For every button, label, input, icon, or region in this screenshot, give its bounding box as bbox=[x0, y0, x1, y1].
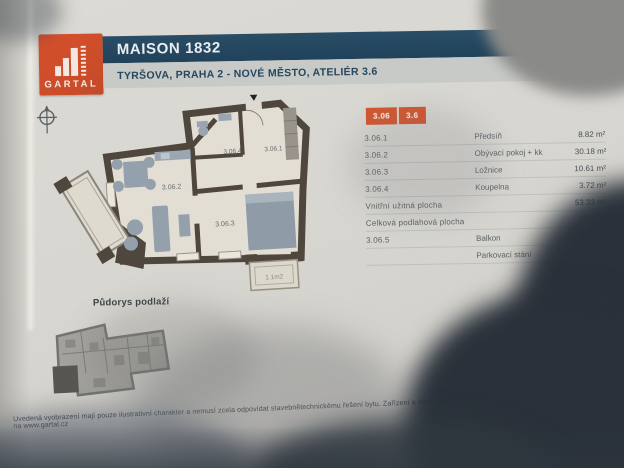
apartment-floor-plan: 1.1m2 bbox=[44, 93, 340, 304]
room-name: Obývací pokoj + kk bbox=[475, 147, 543, 157]
project-title: MAISON 1832 bbox=[117, 39, 221, 58]
balcony-area-label: 1.1m2 bbox=[265, 273, 284, 281]
room-code: 3.06.5 bbox=[366, 233, 476, 244]
room-area-table: 3.06.1 Předsíň 8.82 m² 3.06.2 Obývací po… bbox=[364, 126, 607, 266]
address-subtitle: TYRŠOVA, PRAHA 2 - NOVÉ MĚSTO, ATELIÉR 3… bbox=[117, 65, 378, 82]
window bbox=[219, 251, 241, 259]
coffee-table bbox=[178, 214, 190, 237]
building-floor-overview bbox=[51, 310, 181, 404]
brochure-sheet: GARTAL MAISON 1832 TYRŠOVA, PRAHA 2 - NO… bbox=[0, 0, 624, 468]
room-code bbox=[366, 255, 476, 257]
room-name: Balkon bbox=[476, 232, 543, 242]
mini-plan-caption: Půdorys podlaží bbox=[61, 296, 201, 309]
room-code: 3.06.3 bbox=[365, 165, 475, 176]
room-label-bathroom: 3.06.4 bbox=[223, 148, 242, 156]
summary-area: 53.33 m² bbox=[542, 197, 606, 207]
unit-badge: 3.06 3.6 bbox=[366, 107, 426, 125]
sofa bbox=[152, 205, 171, 252]
room-area: 30.18 m² bbox=[542, 146, 606, 156]
summary-area: 55.7 m² bbox=[543, 214, 607, 224]
building-bars-icon bbox=[54, 44, 89, 77]
brand-name: GARTAL bbox=[44, 79, 98, 91]
room-area: Ne bbox=[543, 248, 607, 258]
photographed-brochure-page: GARTAL MAISON 1832 TYRŠOVA, PRAHA 2 - NO… bbox=[0, 0, 624, 468]
entrance-arrow-icon bbox=[248, 93, 260, 101]
room-code: 3.06.4 bbox=[365, 182, 475, 193]
gartal-logo: GARTAL bbox=[38, 33, 103, 95]
room-name: Parkovací stání bbox=[476, 249, 543, 259]
summary-label: Celková podlahová plocha bbox=[366, 216, 476, 227]
unit-badge-variant: 3.6 bbox=[399, 107, 426, 124]
room-code: 3.06.2 bbox=[365, 148, 475, 159]
room-label-bedroom: 3.06.3 bbox=[215, 220, 235, 228]
window bbox=[177, 253, 199, 261]
room-label-living: 3.06.2 bbox=[162, 183, 182, 191]
room-area: 8.82 m² bbox=[541, 129, 605, 139]
room-code: 3.06.1 bbox=[364, 131, 474, 142]
room-area: 3.72 m² bbox=[542, 180, 606, 190]
room-name: Ložnice bbox=[475, 164, 542, 174]
room-area: 1.1 m² bbox=[543, 231, 607, 241]
summary-label: Vnitřní užitná plocha bbox=[365, 199, 475, 210]
room-name: Koupelna bbox=[475, 181, 542, 191]
room-name: Předsíň bbox=[474, 130, 541, 140]
room-area: 10.61 m² bbox=[542, 163, 606, 173]
room-label-hall: 3.06.1 bbox=[264, 145, 283, 153]
entrance-door-gap bbox=[246, 100, 263, 110]
unit-badge-number: 3.06 bbox=[366, 107, 397, 125]
table-row: Parkovací stání Ne bbox=[366, 245, 607, 266]
